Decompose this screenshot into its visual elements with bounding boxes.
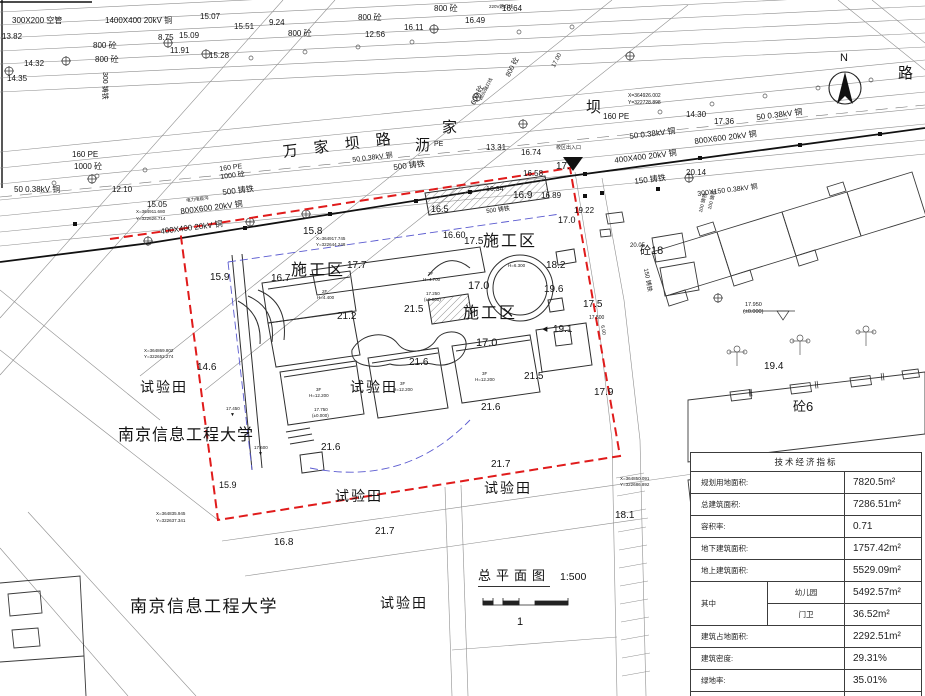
drawing-frame (0, 0, 92, 188)
table-label: 地上建筑面积: (691, 560, 845, 582)
drawing-title: 总平面图 (478, 568, 550, 587)
north-arrow-icon (829, 72, 861, 104)
table-value: 0.71 (845, 516, 922, 538)
drawing-title-block: 总平面图1:500 (478, 565, 586, 585)
table-value: 5529.09m² (845, 560, 922, 582)
table-row: 容积率:0.71 (691, 516, 922, 538)
table-label: 规划用地面积: (691, 472, 845, 494)
table-value: 2292.51m² (845, 626, 922, 648)
entrance-marker-icon (563, 157, 583, 171)
table-label: 门卫 (768, 604, 845, 626)
table-title: 技术经济指标 (691, 453, 922, 472)
table-label: 地下建筑面积: (691, 538, 845, 560)
north-label: N (840, 52, 848, 64)
table-label: 其中 (691, 582, 768, 626)
table-value: 30辆 (845, 692, 922, 696)
street-lamp-icons (727, 326, 876, 366)
table-value: 5492.57m² (845, 582, 922, 604)
table-value: 35.01% (845, 670, 922, 692)
table-row: 地上建筑面积:5529.09m² (691, 560, 922, 582)
sheet-number: 1 (517, 616, 523, 628)
table-row: 建筑密度:29.31% (691, 648, 922, 670)
survey-point-icons (4, 24, 723, 303)
scale-bar (483, 598, 568, 605)
table-label: 总建筑面积: (691, 494, 845, 516)
table-row: 其中幼儿园5492.57m² (691, 582, 922, 604)
table-label: 建筑占地面积: (691, 626, 845, 648)
corner-building (0, 576, 86, 696)
table-value: 36.52m² (845, 604, 922, 626)
apartment-buildings (600, 172, 925, 306)
table-value: 1757.42m² (845, 538, 922, 560)
table-label: 建筑密度: (691, 648, 845, 670)
table-value: 7820.5m² (845, 472, 922, 494)
utility-pole-icons (52, 25, 873, 185)
table-label: 机动车车位: (691, 692, 845, 696)
table-row: 绿地率:35.01% (691, 670, 922, 692)
table-row: 总建筑面积:7286.51m² (691, 494, 922, 516)
table-row: 规划用地面积:7820.5m² (691, 472, 922, 494)
drawing-scale: 1:500 (560, 571, 586, 583)
red-boundary (110, 168, 620, 520)
table-value: 7286.51m² (845, 494, 922, 516)
table-value: 29.31% (845, 648, 922, 670)
datum-marker (743, 311, 795, 320)
table-row: 建筑占地面积:2292.51m² (691, 626, 922, 648)
tech-economic-table: 技术经济指标规划用地面积:7820.5m²总建筑面积:7286.51m²容积率:… (690, 452, 922, 696)
table-row: 机动车车位:30辆 (691, 692, 922, 696)
table-label: 幼儿园 (768, 582, 845, 604)
table-label: 容积率: (691, 516, 845, 538)
table-row: 地下建筑面积:1757.42m² (691, 538, 922, 560)
site-plan-page: 300X200 空管13.821400X400 20kV 铜15.0715.51… (0, 0, 925, 696)
table-label: 绿地率: (691, 670, 845, 692)
